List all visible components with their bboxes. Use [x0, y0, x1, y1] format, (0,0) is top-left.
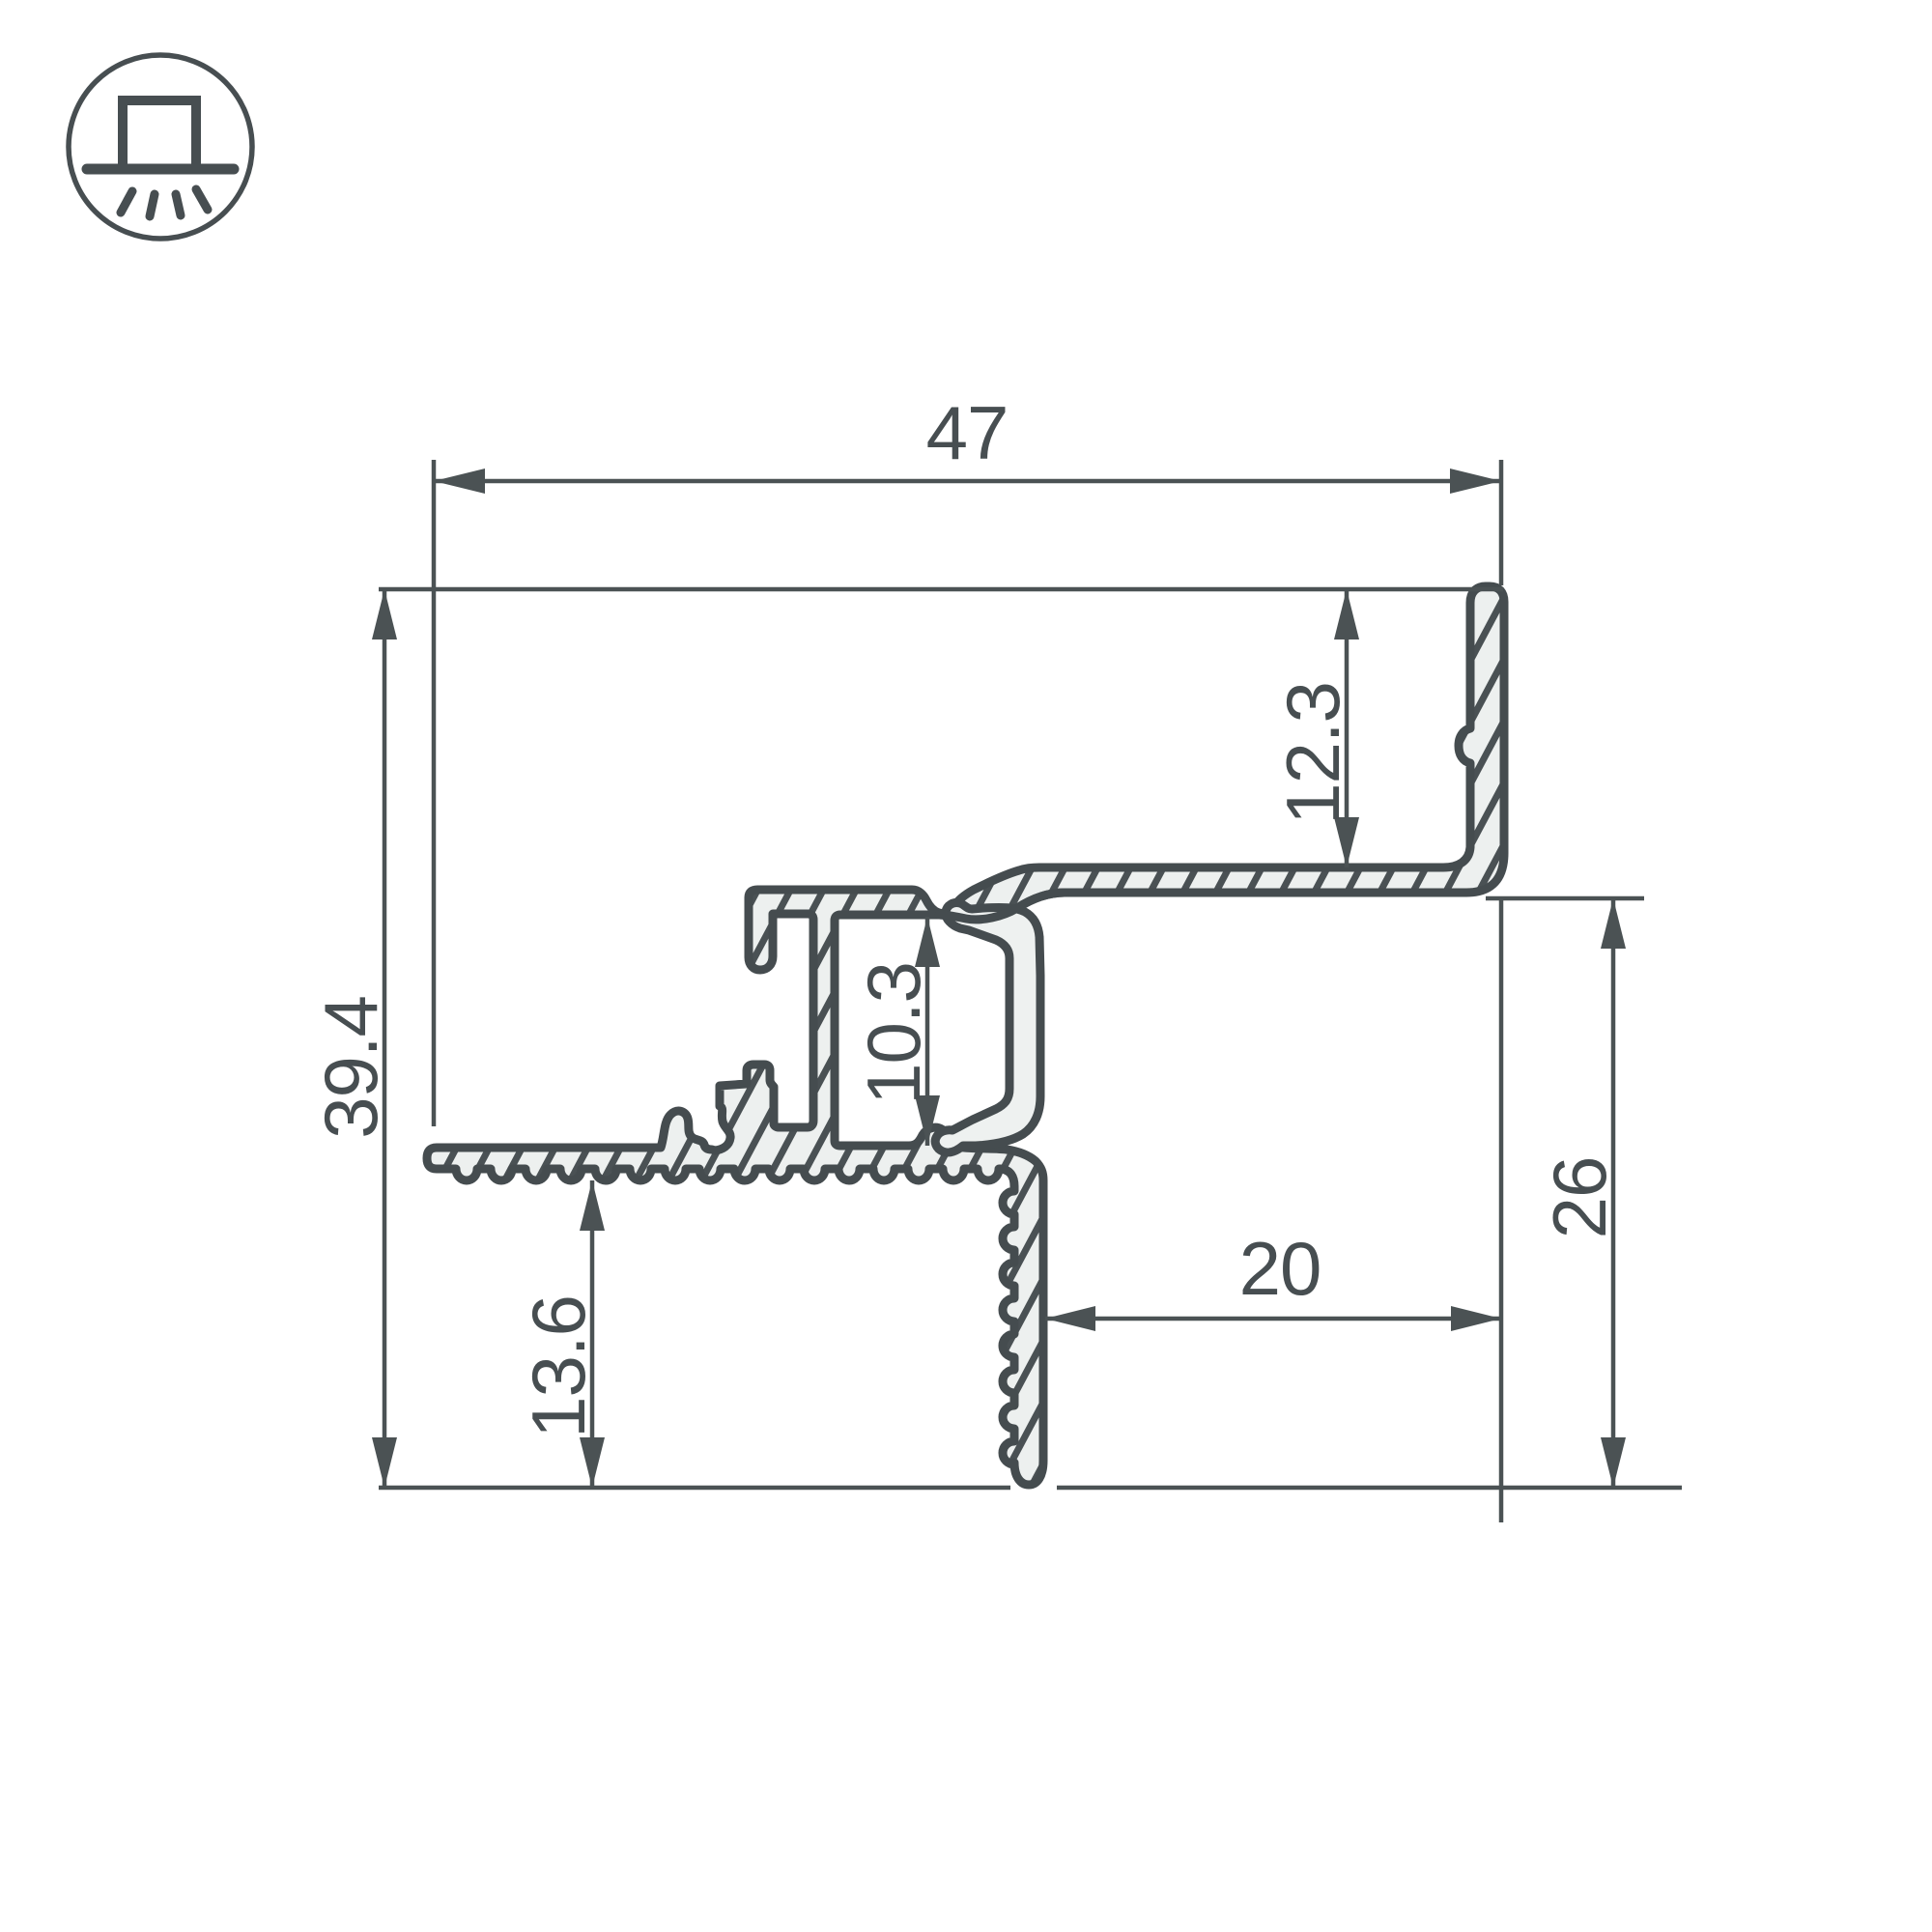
icon-ray-2 — [150, 194, 155, 216]
profile-dimension-drawing: 47 39.4 12.3 10.3 26 20 13 — [0, 0, 1932, 1932]
icon-circle — [69, 55, 252, 239]
dim-label-total-width: 47 — [926, 390, 1009, 475]
dim-label-bottom-leg-height: 13.6 — [516, 1295, 601, 1438]
page: 47 39.4 12.3 10.3 26 20 13 — [0, 0, 1932, 1932]
icon-ray-3 — [176, 194, 181, 215]
dim-label-channel-opening: 10.3 — [851, 962, 936, 1105]
drawing-background — [0, 0, 1932, 1932]
dim-label-top-flange-height: 12.3 — [1270, 682, 1355, 825]
dim-label-right-side-height: 26 — [1537, 1157, 1622, 1239]
dim-label-total-height: 39.4 — [308, 996, 393, 1139]
dim-label-step-depth: 20 — [1239, 1226, 1321, 1311]
recessed-light-icon — [69, 55, 252, 239]
